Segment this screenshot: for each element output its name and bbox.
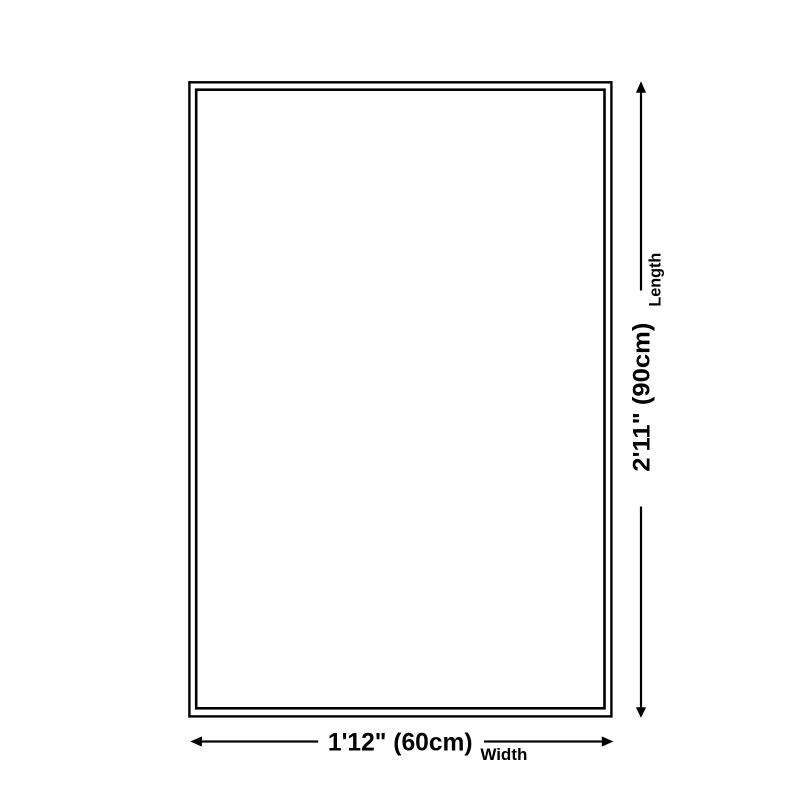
svg-text:2'11" (90cm): 2'11" (90cm) [628,323,655,472]
svg-text:Width: Width [480,745,527,764]
svg-text:Length: Length [646,253,664,307]
svg-text:1'12" (60cm): 1'12" (60cm) [328,730,473,757]
